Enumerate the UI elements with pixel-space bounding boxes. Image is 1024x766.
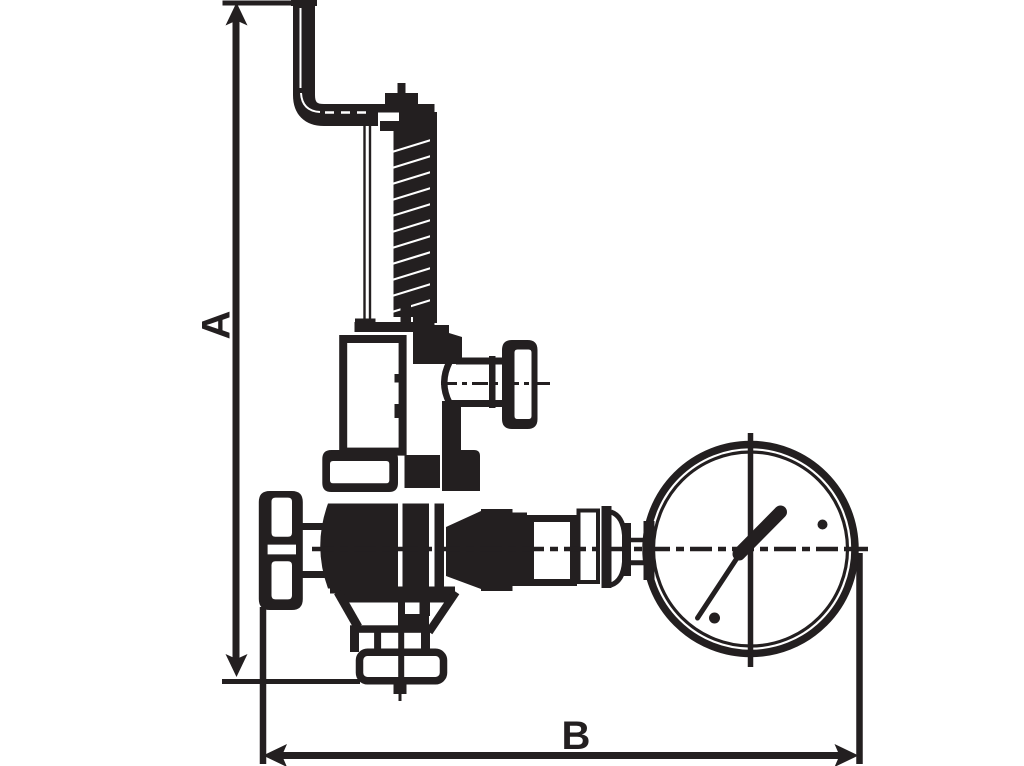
svg-text:A: A [195,311,239,340]
svg-text:B: B [562,714,591,758]
